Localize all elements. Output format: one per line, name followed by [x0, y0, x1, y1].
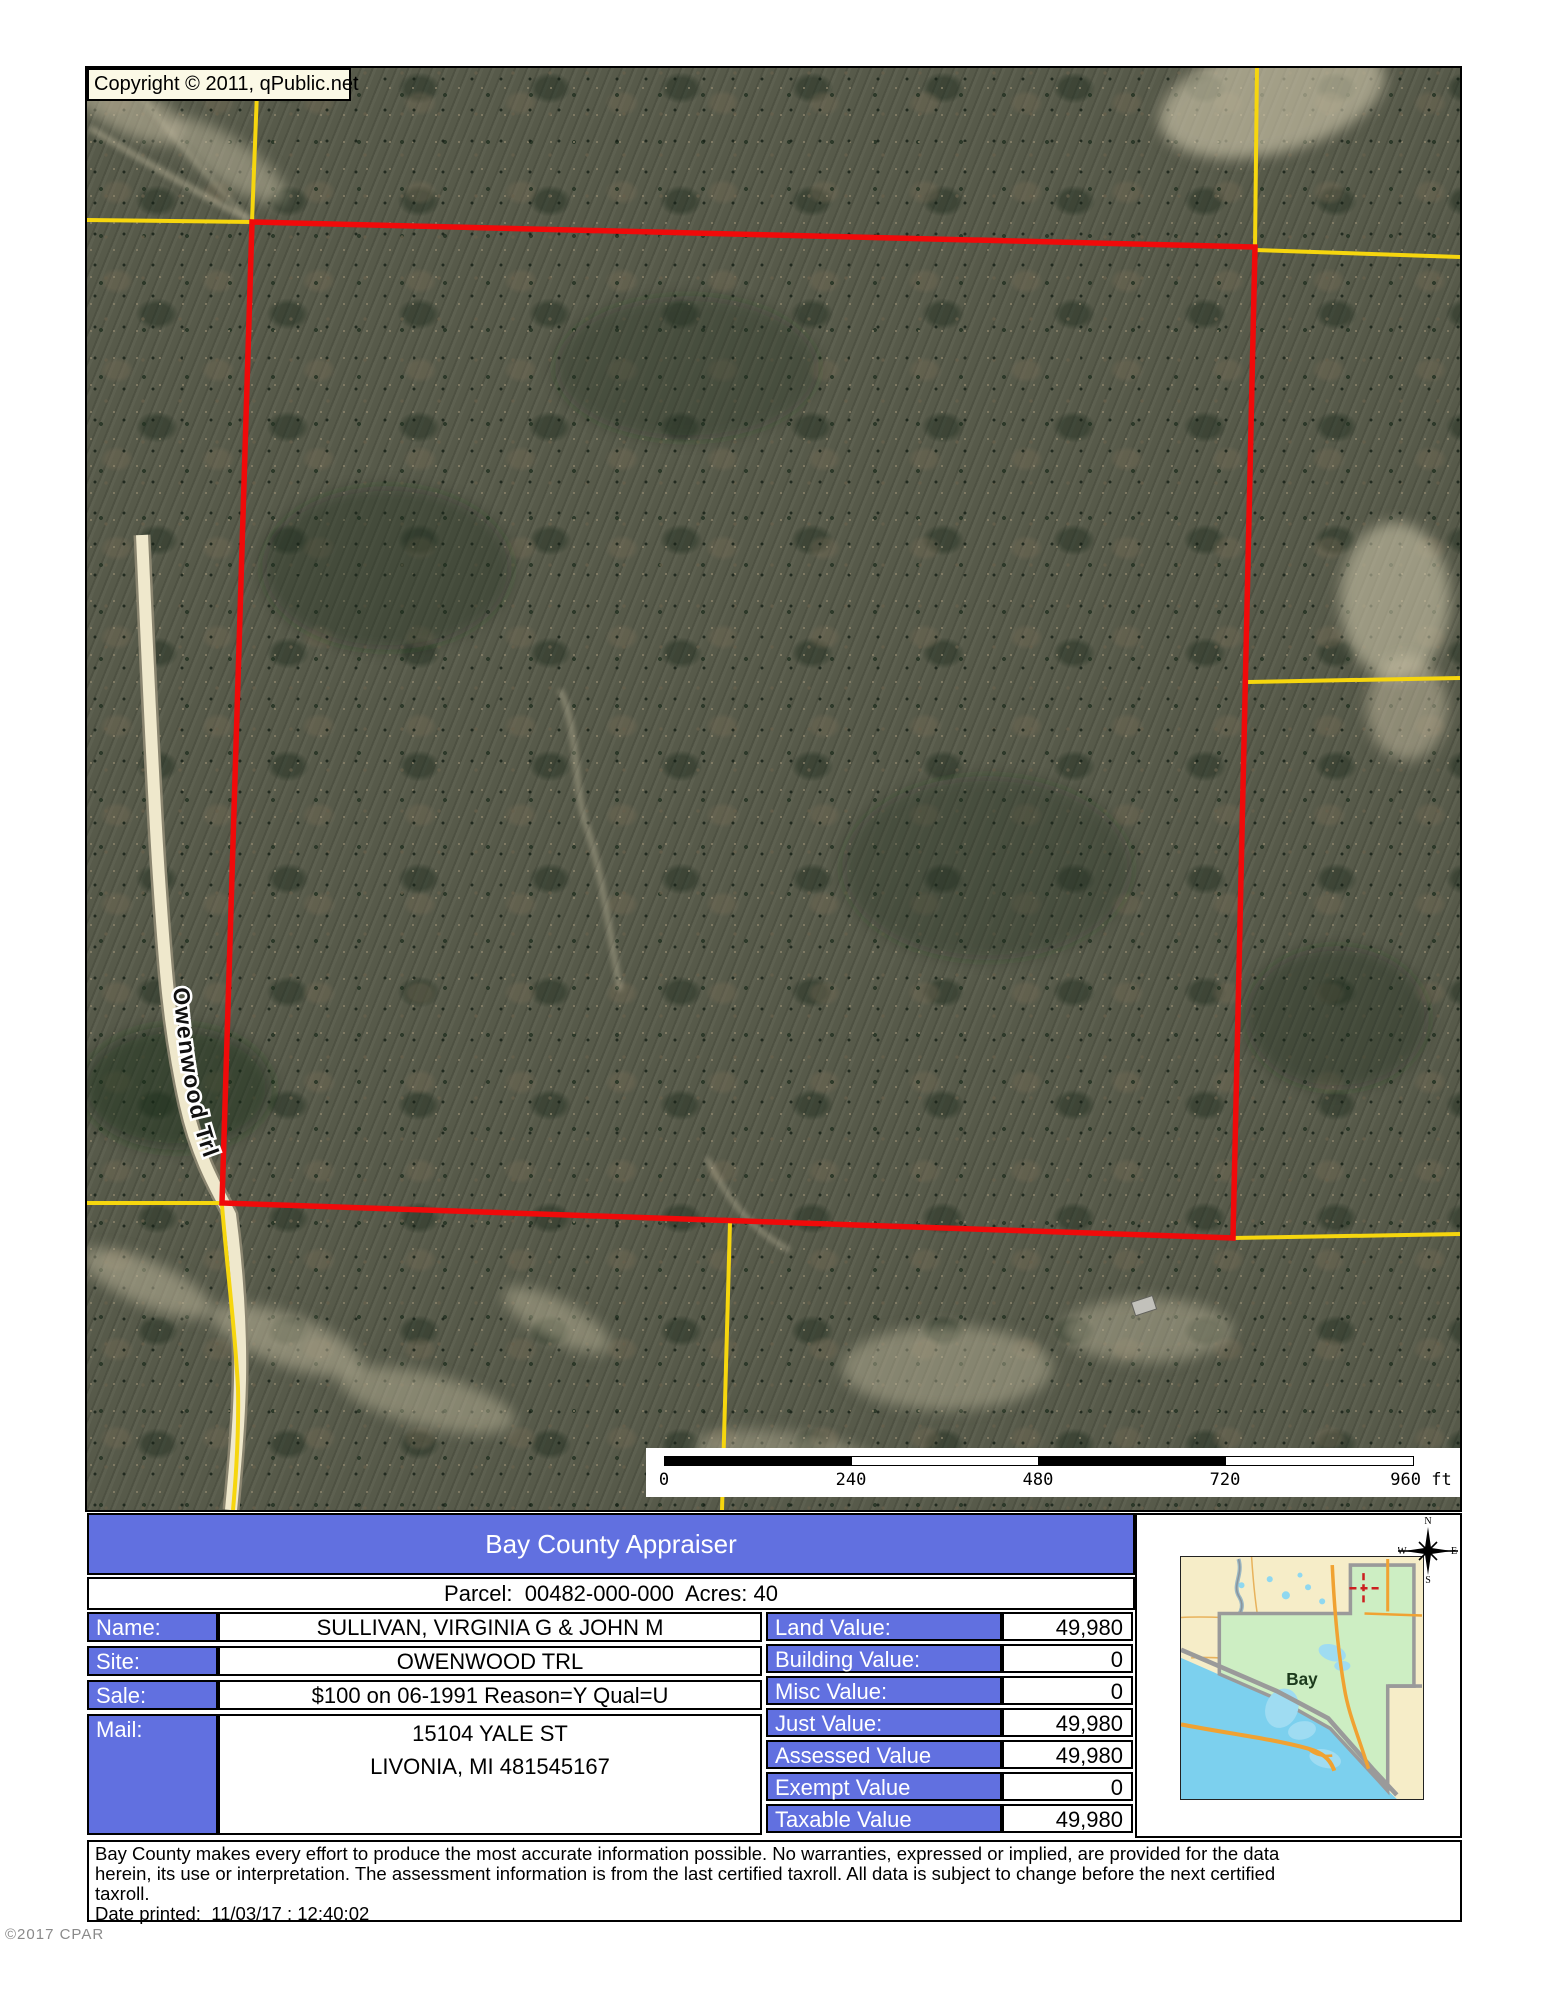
sale-label-cell: Sale: — [87, 1680, 218, 1710]
site-label-cell: Site: — [87, 1646, 218, 1676]
disclaimer-line: Bay County makes every effort to produce… — [95, 1844, 1454, 1864]
value-label-cell: Building Value: — [766, 1644, 1002, 1673]
scale-end-label: 960 ft — [1390, 1470, 1451, 1490]
value-label-cell: Exempt Value — [766, 1772, 1002, 1801]
aerial-map: Owenwood Trl Copyright © 2011, qPublic.n… — [85, 66, 1462, 1512]
mail-address-line2: LIVONIA, MI 481545167 — [220, 1750, 760, 1783]
county-locator-inset: Bay N S W E — [1135, 1513, 1462, 1838]
disclaimer-line: herein, its use or interpretation. The a… — [95, 1864, 1454, 1884]
mail-value-cell: 15104 YALE ST LIVONIA, MI 481545167 — [218, 1714, 762, 1835]
scale-tick: 0 — [659, 1470, 669, 1490]
value-label-cell: Just Value: — [766, 1708, 1002, 1737]
value-label-cell: Taxable Value — [766, 1804, 1002, 1833]
value-amount-cell: 49,980 — [1002, 1740, 1133, 1769]
value-amount-cell: 0 — [1002, 1772, 1133, 1801]
value-label-cell: Misc Value: — [766, 1676, 1002, 1705]
svg-text:N: N — [1424, 1516, 1431, 1527]
scale-segment — [664, 1456, 853, 1466]
svg-text:S: S — [1425, 1575, 1431, 1583]
value-amount-cell: 0 — [1002, 1644, 1133, 1673]
value-amount-cell: 49,980 — [1002, 1804, 1133, 1833]
mail-label-cell: Mail: — [87, 1714, 218, 1835]
watermark: ©2017 CPAR — [5, 1926, 104, 1943]
site-value-cell: OWENWOOD TRL — [218, 1646, 762, 1676]
date-printed: Date printed: 11/03/17 : 12:40:02 — [95, 1904, 1454, 1924]
disclaimer-line: taxroll. — [95, 1884, 1454, 1904]
county-locator-map: Bay — [1180, 1556, 1424, 1800]
page-title: Bay County Appraiser — [87, 1513, 1135, 1575]
svg-text:W: W — [1398, 1546, 1407, 1557]
county-name-label: Bay — [1286, 1669, 1318, 1689]
value-amount-cell: 0 — [1002, 1676, 1133, 1705]
scale-segment — [851, 1456, 1040, 1466]
compass-rose-icon: N S W E — [1398, 1515, 1458, 1583]
map-overlay: Owenwood Trl — [87, 68, 1460, 1510]
name-value-cell: SULLIVAN, VIRGINIA G & JOHN M — [218, 1612, 762, 1642]
name-label-cell: Name: — [87, 1612, 218, 1642]
scale-segment — [1038, 1456, 1227, 1466]
value-amount-cell: 49,980 — [1002, 1612, 1133, 1641]
svg-text:E: E — [1451, 1546, 1457, 1557]
copyright-notice: Copyright © 2011, qPublic.net — [87, 68, 351, 101]
appraiser-map-page: Owenwood Trl Copyright © 2011, qPublic.n… — [0, 0, 1545, 2000]
parcel-summary: Parcel: 00482-000-000 Acres: 40 — [87, 1577, 1135, 1610]
scale-tick: 720 — [1210, 1470, 1241, 1490]
scale-tick: 480 — [1023, 1470, 1054, 1490]
scale-bar: 0 240 480 720 960 ft — [646, 1448, 1460, 1497]
sale-value-cell: $100 on 06-1991 Reason=Y Qual=U — [218, 1680, 762, 1710]
value-amount-cell: 49,980 — [1002, 1708, 1133, 1737]
value-label-cell: Land Value: — [766, 1612, 1002, 1641]
scale-segment — [1225, 1456, 1414, 1466]
value-label-cell: Assessed Value — [766, 1740, 1002, 1769]
scale-tick: 240 — [836, 1470, 867, 1490]
disclaimer-box: Bay County makes every effort to produce… — [87, 1840, 1462, 1922]
mail-address-line1: 15104 YALE ST — [220, 1717, 760, 1750]
